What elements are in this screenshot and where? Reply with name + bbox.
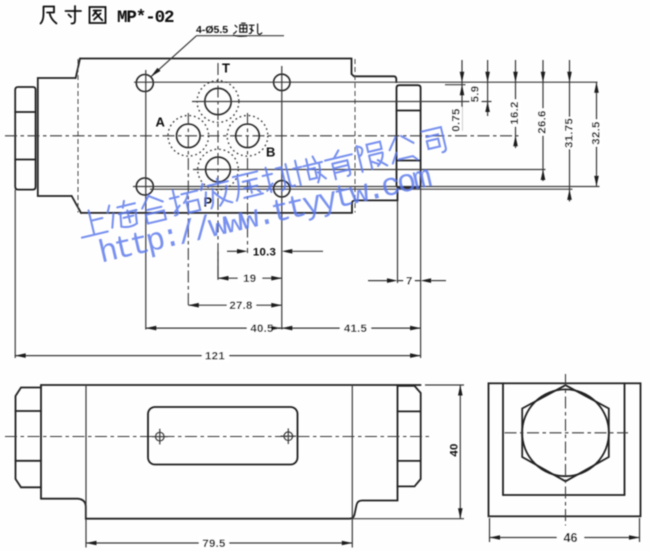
svg-text:46: 46 [564,531,578,545]
svg-text:16.2: 16.2 [509,101,521,124]
svg-text:121: 121 [205,351,225,363]
svg-text:40.5: 40.5 [250,323,274,335]
svg-text:19: 19 [243,273,256,285]
svg-text:32.5: 32.5 [591,121,603,145]
svg-text:10.3: 10.3 [253,246,276,258]
svg-text:31.75: 31.75 [563,118,575,148]
svg-text:79.5: 79.5 [202,538,226,550]
svg-text:26.6: 26.6 [537,110,549,133]
svg-text:0.75: 0.75 [451,108,463,132]
svg-text:27.8: 27.8 [229,300,252,312]
svg-text:MP*-02: MP*-02 [117,8,174,28]
svg-text:4-Ø5.5: 4-Ø5.5 [196,24,228,36]
svg-text:T: T [222,61,230,76]
svg-text:40: 40 [449,443,461,456]
svg-text:5.9: 5.9 [470,86,482,103]
svg-text:41.5: 41.5 [344,323,368,335]
svg-text:7: 7 [406,276,413,288]
svg-text:B: B [266,145,275,160]
svg-text:A: A [156,115,166,130]
